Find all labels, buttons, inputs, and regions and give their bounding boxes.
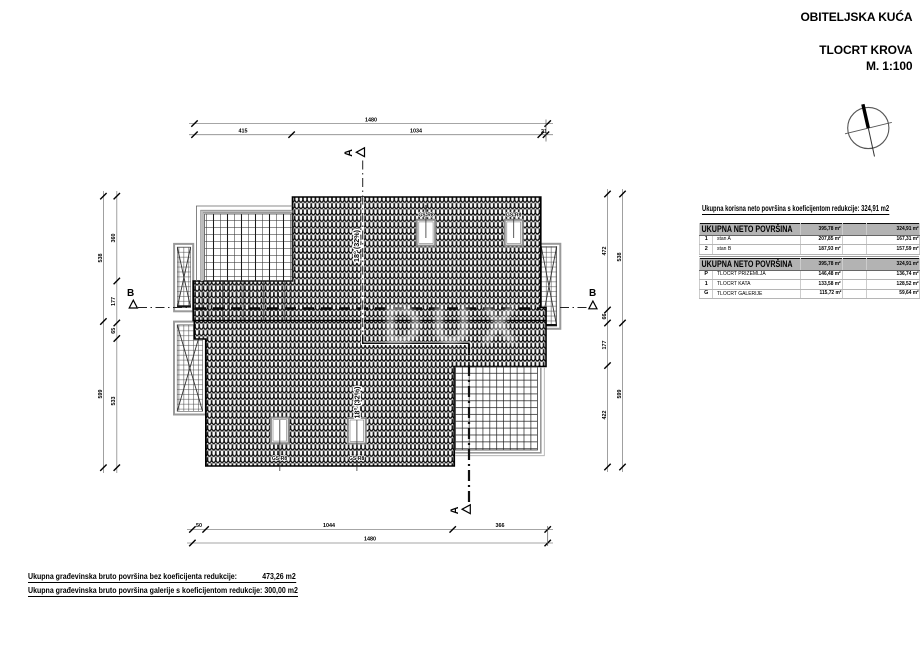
svg-text:533: 533 (111, 397, 117, 406)
svg-text:1480: 1480 (365, 117, 377, 123)
svg-text:18° (32%): 18° (32%) (352, 386, 361, 419)
svg-text:599: 599 (617, 390, 623, 399)
svg-text:GS-R8: GS-R8 (506, 213, 522, 219)
svg-text:65: 65 (111, 328, 117, 334)
svg-text:538: 538 (98, 254, 104, 263)
svg-text:1034: 1034 (410, 128, 422, 134)
svg-text:177: 177 (111, 297, 117, 306)
svg-text:DUX: DUX (383, 295, 527, 355)
svg-text:360: 360 (111, 234, 117, 243)
svg-text:599: 599 (98, 390, 104, 399)
svg-text:1044: 1044 (323, 523, 335, 529)
svg-text:422: 422 (602, 411, 608, 420)
svg-text:366: 366 (496, 523, 505, 529)
svg-text:472: 472 (602, 247, 608, 256)
svg-text:GS-R8: GS-R8 (272, 456, 288, 462)
svg-text:1480: 1480 (364, 537, 376, 543)
svg-text:A: A (449, 506, 461, 514)
svg-text:50: 50 (196, 523, 202, 529)
svg-text:415: 415 (239, 128, 248, 134)
svg-text:538: 538 (617, 253, 623, 262)
svg-text:B: B (589, 288, 596, 299)
svg-text:A: A (343, 149, 355, 157)
svg-text:B: B (127, 288, 134, 299)
svg-text:GS-R8: GS-R8 (349, 456, 365, 462)
svg-text:GS-R8: GS-R8 (418, 212, 434, 218)
svg-text:177: 177 (602, 341, 608, 350)
svg-text:18° (32%): 18° (32%) (352, 229, 361, 262)
svg-text:66: 66 (602, 314, 608, 320)
